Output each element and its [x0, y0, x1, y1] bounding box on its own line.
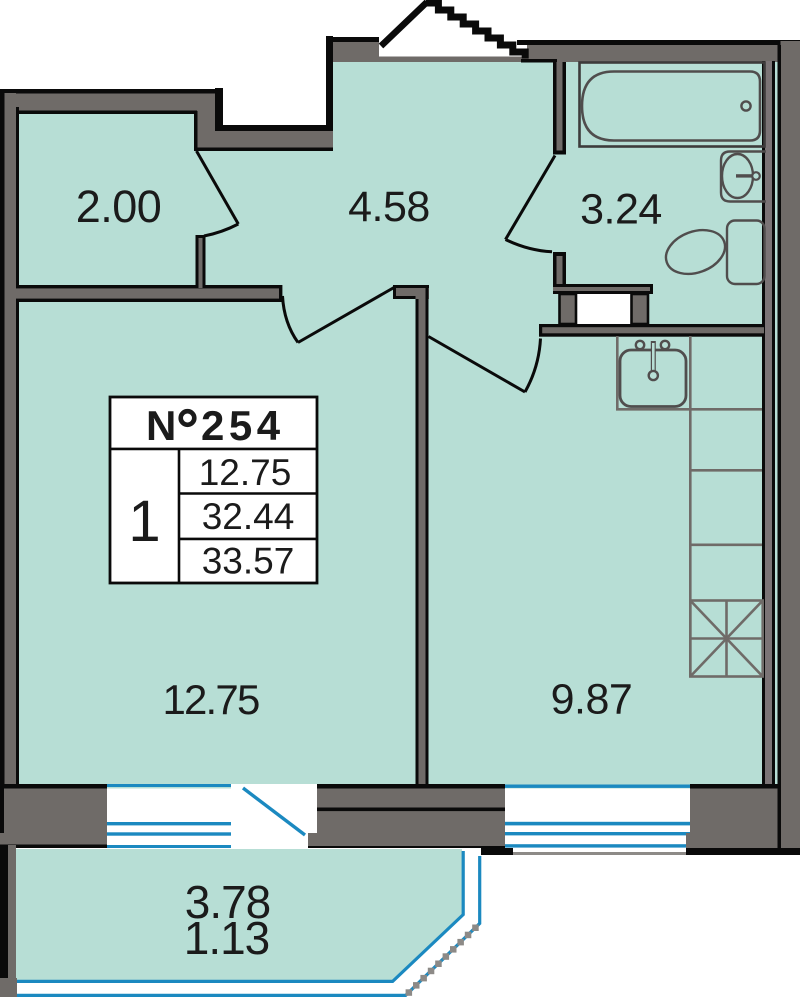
svg-text:32.44: 32.44 [202, 496, 295, 537]
svg-text:254: 254 [201, 402, 285, 449]
svg-text:3.24: 3.24 [580, 186, 662, 234]
svg-text:1: 1 [128, 489, 160, 554]
svg-text:12.75: 12.75 [199, 452, 292, 493]
svg-text:N: N [146, 402, 176, 449]
svg-text:4.58: 4.58 [348, 183, 430, 231]
svg-text:12.75: 12.75 [162, 676, 259, 723]
svg-text:33.57: 33.57 [202, 541, 295, 582]
svg-text:2.00: 2.00 [76, 181, 162, 232]
svg-text:1.13: 1.13 [184, 912, 270, 964]
svg-text:9.87: 9.87 [551, 676, 633, 724]
